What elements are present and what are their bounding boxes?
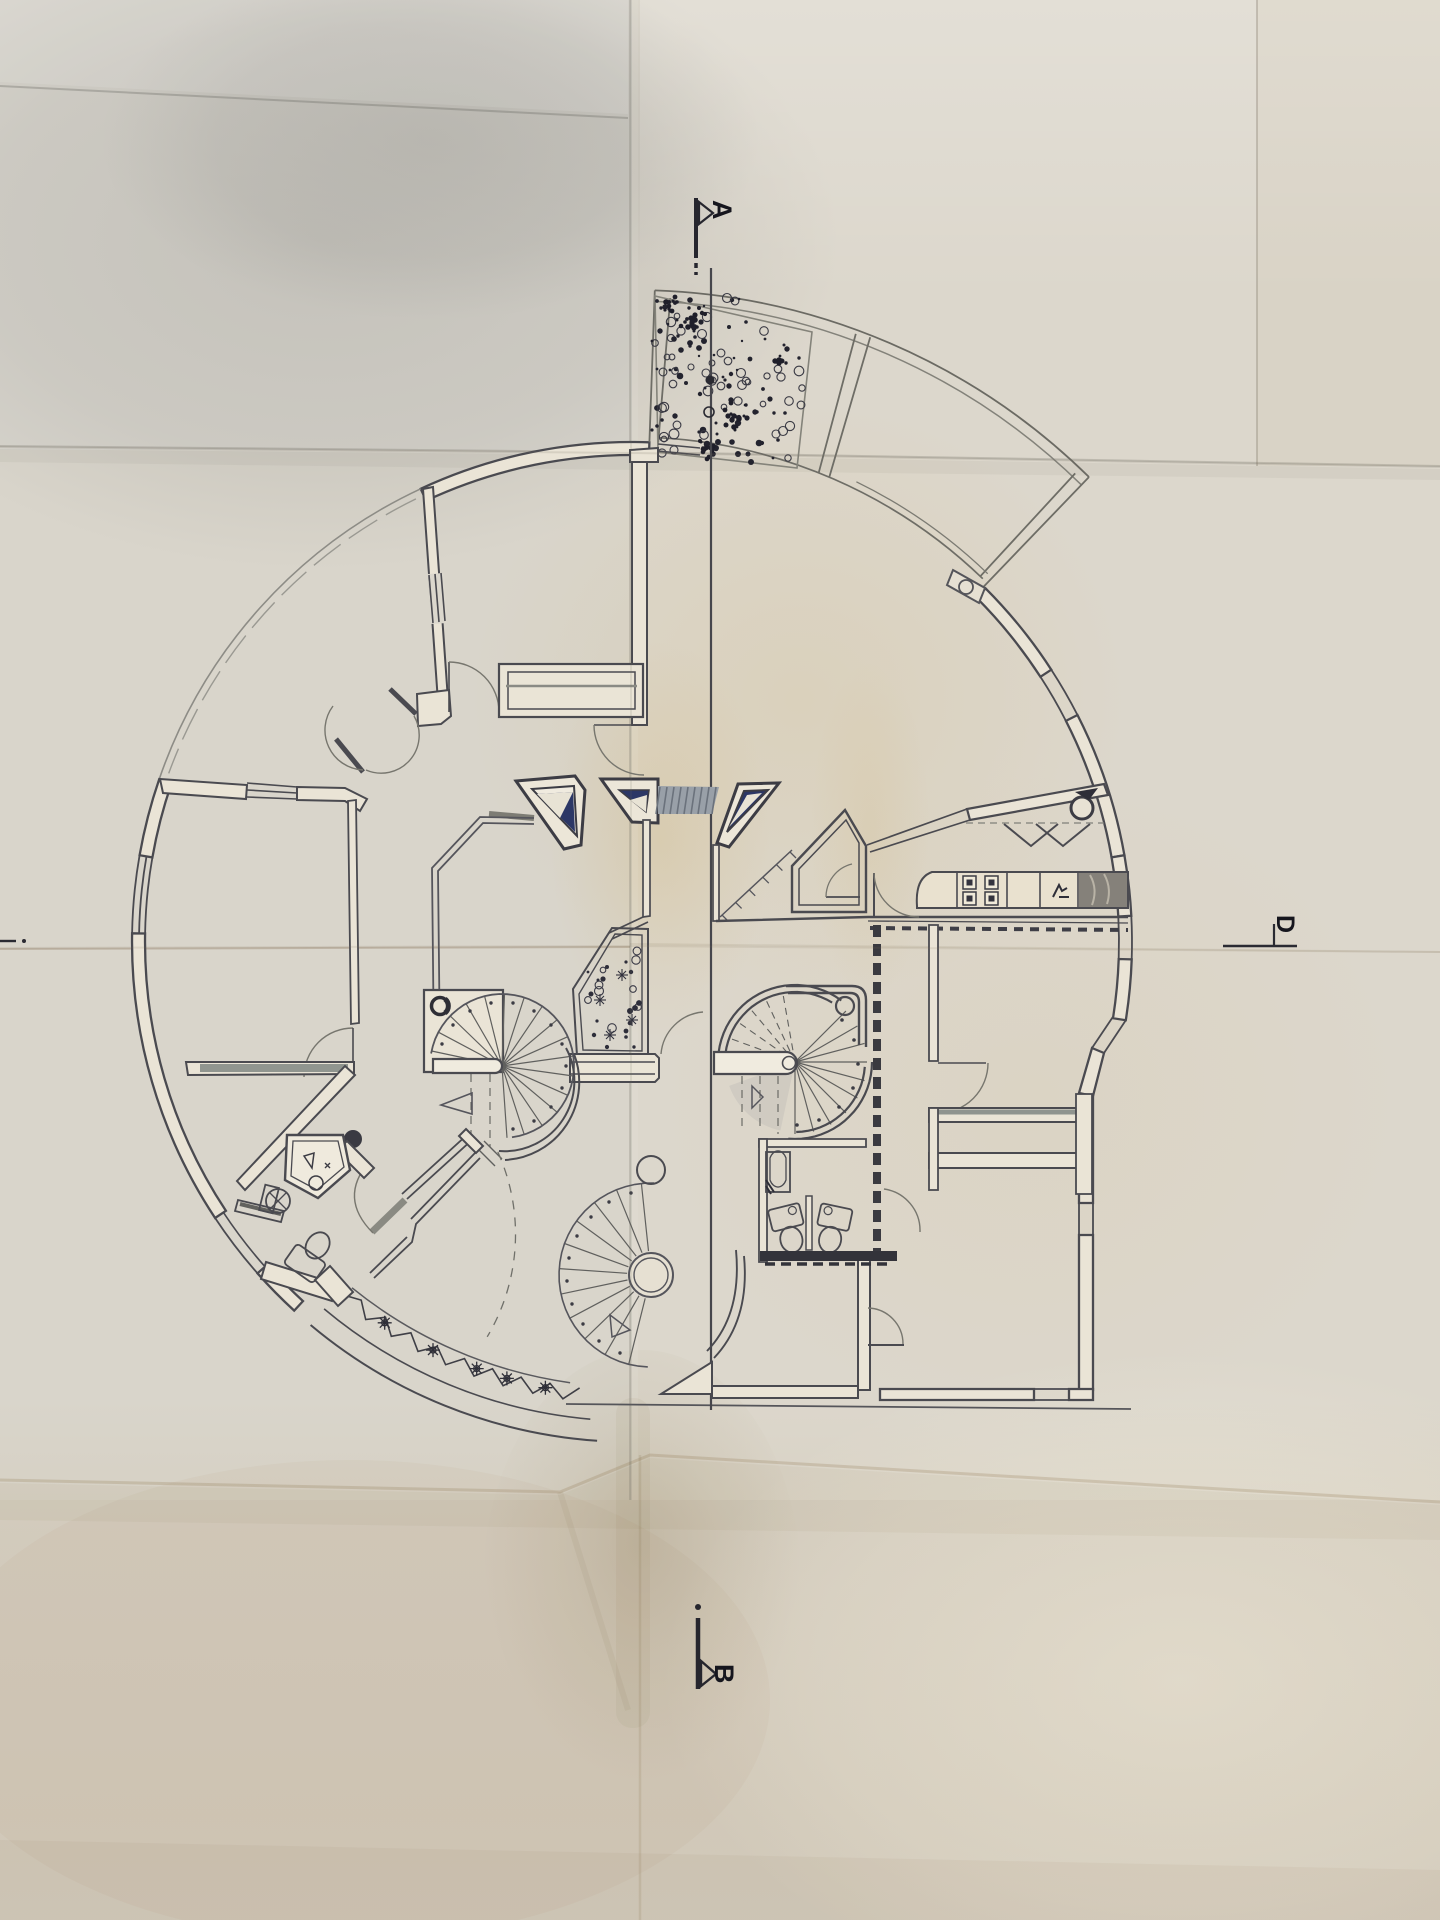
- svg-text:A: A: [707, 200, 737, 220]
- svg-text:D: D: [1271, 915, 1299, 933]
- svg-text:B: B: [709, 1664, 739, 1684]
